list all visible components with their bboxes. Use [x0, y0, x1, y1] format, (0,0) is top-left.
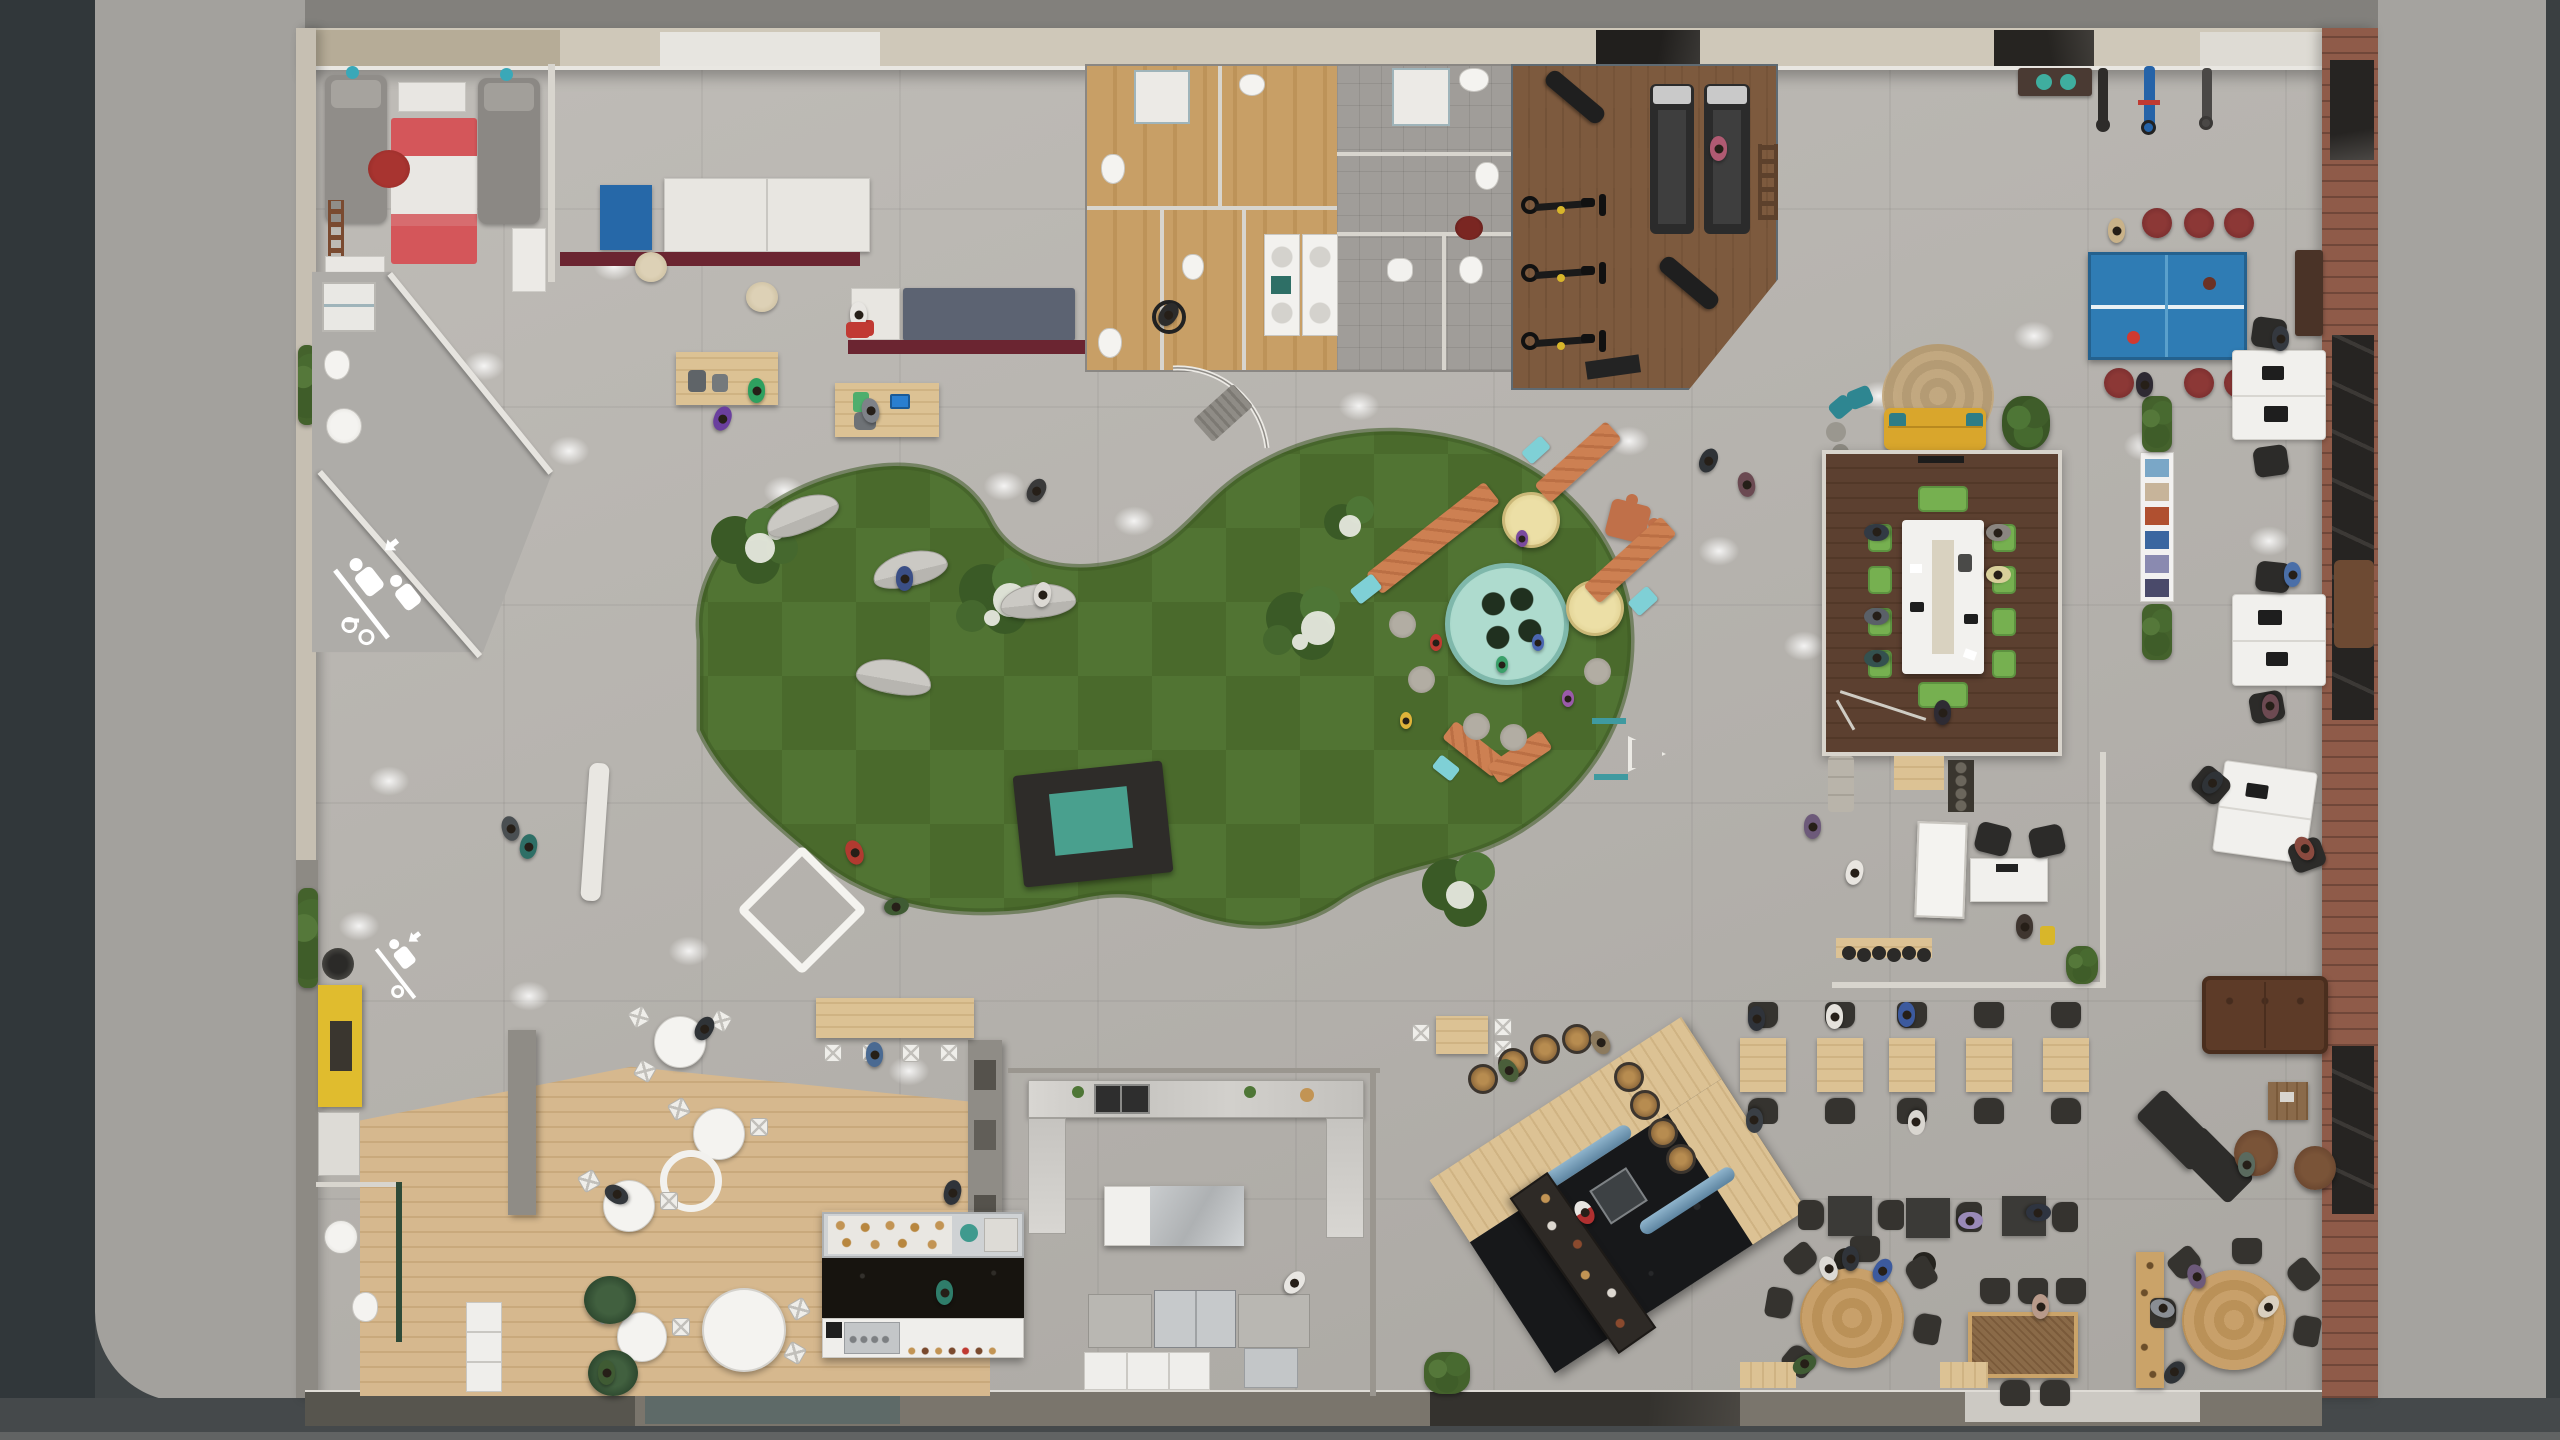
bar-stool [1842, 946, 1856, 960]
planter-marble-right2 [2332, 335, 2374, 720]
pastry-trays [828, 1216, 952, 1254]
person [748, 378, 765, 403]
service-bar [1826, 752, 2108, 990]
pine-console-bench [1940, 1362, 1988, 1388]
table-runner [1932, 540, 1954, 654]
pine-console-bench [1740, 1362, 1796, 1388]
dark-table [1906, 1198, 1950, 1238]
wall-boiler [324, 1220, 358, 1254]
treadmill [1704, 84, 1750, 234]
workout-bench [1656, 254, 1721, 313]
cabinet-white-seam [766, 178, 768, 252]
laptop [2262, 366, 2284, 380]
toilet [1475, 162, 1499, 190]
bicycle-pedal-red [2138, 100, 2160, 105]
bidet [1182, 254, 1204, 280]
toilet [1101, 154, 1125, 184]
sofa-seam [1888, 426, 1982, 428]
wall-top-segment-marble [1596, 30, 1700, 68]
wall-bottom-segment1 [305, 1392, 635, 1426]
dining-chair [1974, 1098, 2004, 1124]
person [866, 1042, 883, 1067]
dining-chair [2056, 1278, 2086, 1304]
marking-arrow-icon [381, 535, 402, 556]
bike-seat [1581, 266, 1595, 275]
office-chair [2027, 823, 2066, 859]
kitchen-wall-right [1370, 1068, 1376, 1396]
wall-sink [1387, 258, 1413, 282]
hedge-planter [2142, 604, 2172, 660]
bike-handle [1599, 330, 1606, 352]
person [1864, 650, 1889, 667]
stepping-stone [1584, 658, 1611, 685]
dark-table [1828, 1196, 1872, 1236]
pendant-teal2 [500, 68, 513, 81]
person [1986, 566, 2011, 583]
stall-wall [1160, 208, 1164, 370]
wc-wall-top [316, 1182, 402, 1187]
shower-stall [1134, 70, 1190, 124]
person [1804, 814, 1821, 839]
pouf [746, 282, 778, 312]
double-sink [1094, 1084, 1150, 1114]
sidewalk-right [2378, 0, 2560, 1402]
wc-room [316, 1182, 402, 1342]
dining-chair [2283, 1255, 2322, 1295]
kitchen-wall-top [1008, 1068, 1380, 1073]
shower-stall2 [1392, 68, 1450, 126]
round-table-wood [1800, 1268, 1904, 1368]
curb-bottom [0, 1432, 2560, 1440]
dining-chair [1781, 1239, 1821, 1278]
bicycle-wheel [2096, 118, 2110, 132]
shelf-box [974, 1060, 996, 1090]
desk-pair [2232, 594, 2326, 686]
daybed-pillow [331, 80, 381, 108]
spin-bike [1521, 252, 1611, 292]
treadmill-belt [1658, 110, 1686, 224]
bike-pedal [1557, 274, 1565, 282]
person [2262, 694, 2279, 719]
child [1496, 656, 1508, 673]
conference-chair [1868, 566, 1892, 594]
barrel-stool [1648, 1118, 1678, 1148]
wire-stool [824, 1044, 842, 1062]
speaker-device [1958, 554, 1972, 572]
dining-chair [1825, 1098, 1855, 1124]
wall-bottom-glass [645, 1396, 900, 1424]
person [2026, 1204, 2051, 1221]
marking-arrow-icon [405, 928, 423, 946]
dining-table [1889, 1038, 1935, 1092]
herb-pot [1244, 1086, 1256, 1098]
pendant-teal [346, 66, 359, 79]
stage-mat-teal [1049, 786, 1133, 856]
stall-wall [1087, 206, 1337, 210]
barrel-stool [1562, 1024, 1592, 1054]
bike-handle [1599, 194, 1606, 216]
teal-plate [960, 1224, 978, 1242]
person [1864, 608, 1889, 625]
spin-bike [1521, 320, 1611, 360]
vanity-double-sink [1302, 234, 1338, 336]
person [1864, 524, 1889, 541]
person [598, 1360, 615, 1385]
kitchen [1008, 1060, 1388, 1396]
beanbag-red [368, 150, 410, 188]
person [1748, 1006, 1765, 1031]
treadmill-belt [1713, 110, 1741, 224]
pedestal-sink [326, 408, 362, 444]
dining-table [2043, 1038, 2089, 1092]
puzzle-nub [1626, 494, 1638, 506]
office-chair [2252, 444, 2290, 478]
hedge-left-wall [298, 888, 318, 988]
spin-bike [1521, 184, 1611, 224]
dining-chair [1980, 1278, 2010, 1304]
marking-bicycle-icon [355, 626, 377, 648]
sofa-seam [2264, 982, 2266, 1048]
wire-chair [750, 1118, 768, 1136]
hedge-planter [2142, 396, 2172, 452]
bicycle-wheel [2141, 120, 2156, 135]
toilet [1239, 74, 1265, 96]
dining-table [1966, 1038, 2012, 1092]
pos-terminal [826, 1322, 842, 1338]
office-floorplan-render [0, 0, 2560, 1440]
wire-chair [1494, 1018, 1512, 1036]
barrel-stool [1666, 1144, 1696, 1174]
dining-chair [2051, 1098, 2081, 1124]
shower [322, 282, 376, 332]
whiteboard-table [1914, 821, 1967, 919]
person [1986, 524, 2011, 541]
marking-bicycle-icon [345, 618, 359, 622]
toilet [1459, 68, 1489, 92]
person [1958, 1212, 1983, 1229]
bike-pedal [1557, 206, 1565, 214]
tv-screen [1918, 456, 1964, 463]
wall-ladder-rack [1758, 144, 1778, 220]
planter-marble-right1 [2330, 60, 2374, 160]
step-bench-cap [1432, 754, 1461, 781]
dining-chair [2292, 1314, 2323, 1348]
dining-chair [2232, 1238, 2262, 1264]
person [1898, 1002, 1915, 1027]
child [1430, 634, 1442, 651]
stall-wall [1218, 66, 1222, 208]
dining-chair [2052, 1202, 2078, 1232]
trash-bin-yellow [2040, 926, 2055, 945]
child [1562, 690, 1574, 707]
playground [1330, 430, 1690, 810]
leather-armchair [2294, 1146, 2336, 1190]
wire-stool [902, 1044, 920, 1062]
daybed2-pillow [484, 83, 534, 111]
vanity-teal-tray [1271, 276, 1291, 294]
paddle [2203, 277, 2216, 290]
person [1826, 1004, 1843, 1029]
person [2272, 326, 2289, 351]
person [1934, 700, 1951, 725]
person [2136, 372, 2153, 397]
child [1400, 712, 1412, 729]
bench-right-wall [2334, 560, 2374, 648]
gray-pouf [1826, 422, 1846, 442]
appliance-cabinet-gray [1088, 1294, 1152, 1348]
community-table [816, 998, 974, 1038]
cabinet-blue [600, 185, 652, 250]
dining-chair [1798, 1200, 1824, 1230]
dining-chair [2040, 1380, 2070, 1406]
person [1746, 1108, 1763, 1133]
bike-seat [1581, 334, 1595, 343]
round-stool [2142, 208, 2172, 238]
herb-pot [1072, 1086, 1084, 1098]
child [1516, 530, 1528, 547]
bike-pedal [1557, 342, 1565, 350]
desk-pair [2232, 350, 2326, 440]
person [1710, 136, 1727, 161]
street-edge-right [2546, 0, 2560, 1402]
laptop-on-table [1964, 614, 1978, 624]
workstations [2130, 300, 2330, 880]
wire-chair [672, 1318, 690, 1336]
granite-counter-left [1028, 1118, 1066, 1234]
person [2108, 218, 2125, 243]
wall-top-segment-tan [305, 30, 560, 68]
dining-chair [2000, 1380, 2030, 1406]
street-left [0, 0, 95, 1440]
toilet [1459, 256, 1483, 284]
dining-chair [1974, 1002, 2004, 1028]
coffee-bar-black [822, 1258, 1024, 1318]
booth-seat [330, 1021, 352, 1071]
bicycle-wheel [2199, 116, 2213, 130]
potted-plant [1424, 1352, 1470, 1394]
round-stool [2184, 208, 2214, 238]
stepping-stone [1408, 666, 1435, 693]
wood-console [1894, 756, 1944, 790]
pouf [635, 252, 667, 282]
steel-fridge [1154, 1290, 1236, 1348]
stall-wall [1242, 208, 1246, 370]
red-floor-cushion [846, 322, 870, 338]
bike-seat [1581, 198, 1595, 207]
person [2016, 914, 2033, 939]
leather-lounge [2130, 960, 2330, 1210]
glass-wall-right [2100, 752, 2106, 988]
laptop [2264, 406, 2288, 422]
dining-chair [1912, 1312, 1943, 1346]
sign-logo-circle [2060, 74, 2076, 90]
appliance-cabinet-gray [1238, 1294, 1310, 1348]
person [2238, 1152, 2255, 1177]
treadmill-console [1707, 86, 1747, 104]
nap-room-wall-right [548, 64, 555, 282]
cafe-counter [822, 1210, 1024, 1358]
barrel-stool [1614, 1062, 1644, 1092]
magazine [2280, 1092, 2294, 1102]
yellow-lounge [1820, 340, 2070, 460]
laptop [2258, 610, 2282, 625]
easel-tripod [1836, 700, 1856, 731]
laptop [2245, 783, 2269, 800]
laptop-on-table [1910, 602, 1924, 612]
toilet [324, 350, 350, 380]
conference-chair [1992, 608, 2016, 636]
dining-chair [1878, 1200, 1904, 1230]
barrel-stool [1530, 1034, 1560, 1064]
shower-glass [324, 304, 374, 307]
dining-table [1817, 1038, 1863, 1092]
stall-wall [1442, 236, 1446, 370]
person [2032, 1294, 2049, 1319]
person [2284, 562, 2301, 587]
shelf-box [974, 1120, 996, 1150]
workout-bench [1542, 68, 1607, 127]
barrel-stool [1468, 1064, 1498, 1094]
step-bench [1534, 421, 1621, 503]
bench-navy1 [903, 288, 1075, 341]
treadmill-console [1653, 86, 1691, 104]
wc-wall-right [396, 1182, 402, 1342]
wall-top-segment-white [660, 32, 880, 68]
wire-chair [1412, 1024, 1430, 1042]
cafe-grinder-stool [322, 948, 354, 980]
granite-counter-right [1326, 1118, 1364, 1238]
monitor [1996, 864, 2018, 872]
stepping-stone [1500, 724, 1527, 751]
person [1908, 1110, 1925, 1135]
wash-sink-unit [1244, 1348, 1298, 1388]
potted-tree [2002, 396, 2050, 450]
person [936, 1280, 953, 1305]
person [1842, 1246, 1859, 1271]
child [1532, 634, 1544, 651]
conference-bench [1918, 486, 1968, 512]
round-stool [2224, 208, 2254, 238]
bread-bowl [1300, 1088, 1314, 1102]
teal-board [1592, 718, 1626, 724]
bar-stool [1872, 946, 1886, 960]
bar-stool [1902, 946, 1916, 960]
magazine-rack [2140, 452, 2174, 602]
sign-logo-circle [2036, 74, 2052, 90]
step-bench-cap [1521, 435, 1551, 464]
nightstand [398, 82, 466, 112]
paper-sheet [1910, 564, 1922, 573]
treadmill [1650, 84, 1694, 234]
espresso-machine [844, 1322, 900, 1354]
counter-maroon-a [560, 252, 860, 266]
barrel-stool [1630, 1090, 1660, 1120]
stepping-stone [1463, 713, 1490, 740]
bench-cushions [1828, 756, 1854, 812]
prep-island-steel-top [1150, 1186, 1244, 1246]
phone-booth-yellow [318, 985, 362, 1107]
storage-shelf [318, 1112, 360, 1176]
cafe-big-round-table [702, 1288, 786, 1372]
bike-handle [1599, 262, 1606, 284]
bike-parking [2010, 60, 2270, 150]
base-cabinets-white [1084, 1352, 1210, 1390]
wire-stool [940, 1044, 958, 1062]
dining-chair [2051, 1002, 2081, 1028]
easel-tripod [1840, 690, 1927, 721]
towel-basket [1455, 216, 1483, 240]
stepping-stone [1389, 611, 1416, 638]
step-bench-cap [1627, 586, 1658, 617]
person [896, 566, 913, 591]
toilet [352, 1292, 378, 1322]
office-chair [1973, 820, 2013, 857]
partition-wall [508, 1030, 536, 1215]
wayfinding-sign [2018, 68, 2092, 96]
sidewalk-left [95, 0, 305, 1402]
camp-stove-console [1948, 760, 1974, 812]
laptop [2266, 652, 2288, 666]
conference-chair [1992, 650, 2016, 678]
rattan-lounge-chair [584, 1276, 636, 1324]
dining-table [1740, 1038, 1786, 1092]
dining-chair [1764, 1286, 1795, 1320]
cup-row [906, 1346, 1002, 1356]
white-box-cabinets [466, 1302, 502, 1392]
rug-stripe [391, 214, 477, 227]
teal-board [1594, 774, 1628, 780]
toilet [1098, 328, 1122, 358]
shelf-white [512, 228, 546, 292]
wire-chair [660, 1192, 678, 1210]
